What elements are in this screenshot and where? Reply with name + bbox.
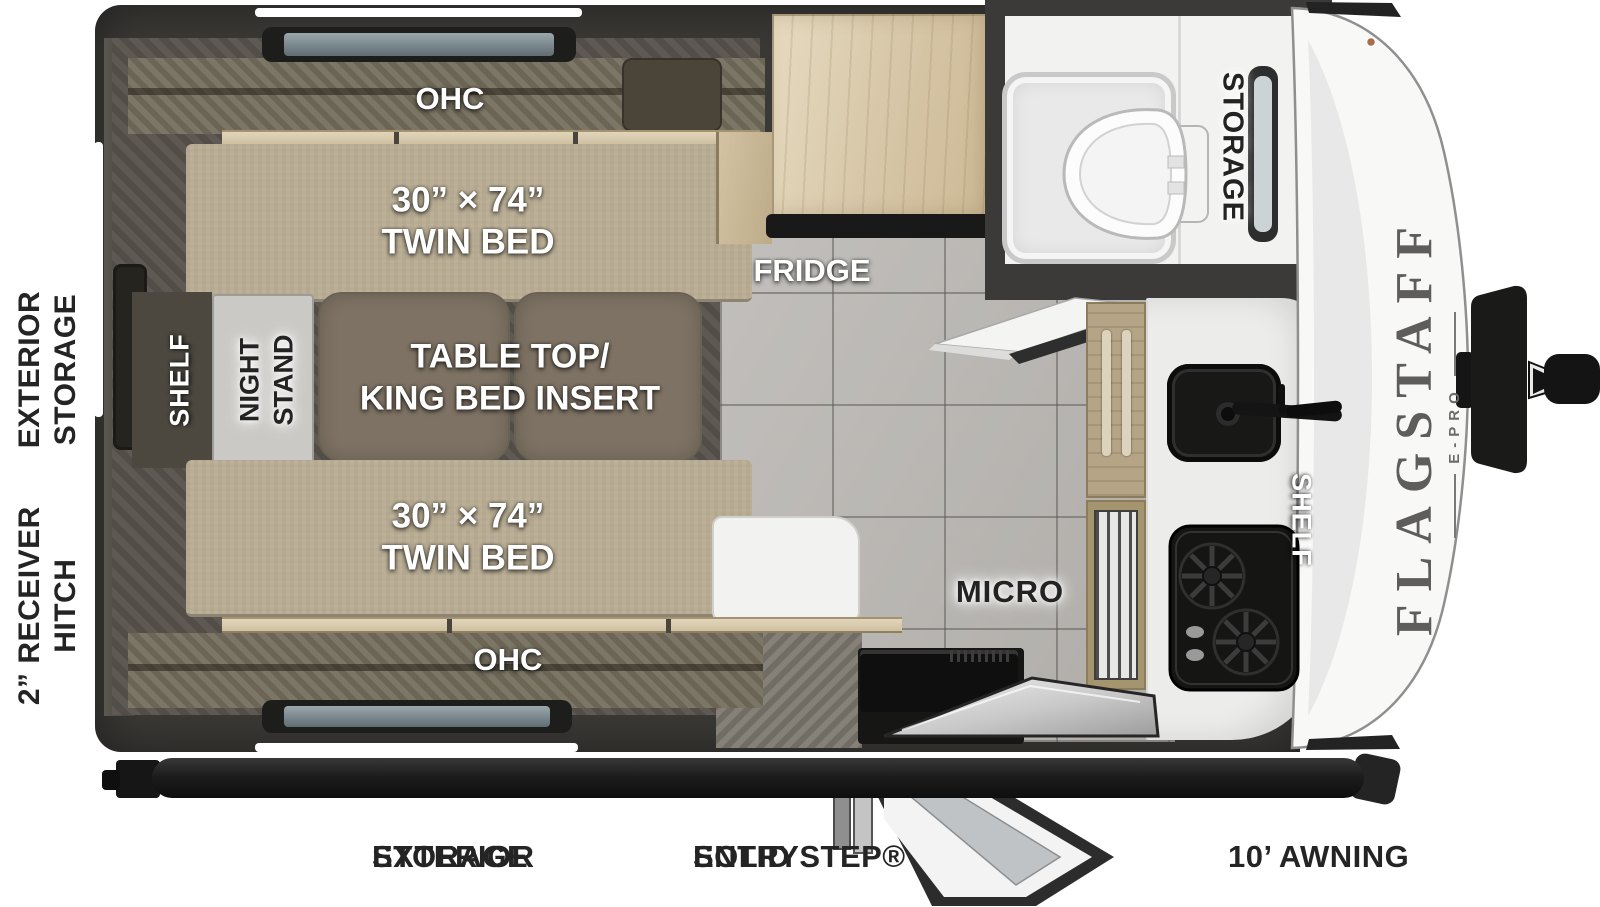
label-ohc-top: OHC — [416, 80, 485, 118]
cabinet-wedge — [716, 132, 772, 244]
left-exterior-labels: 2” RECEIVER HITCH EXTERIOR STORAGE — [0, 198, 106, 798]
top-window-slit — [255, 8, 582, 17]
label-line: HITCH — [48, 506, 84, 705]
label-storage-bath: STORAGE — [1214, 72, 1249, 222]
label-table-1: TABLE TOP/ — [411, 336, 610, 377]
dinette-table — [712, 516, 860, 622]
label-table-2: KING BED INSERT — [360, 378, 660, 419]
label-receiver-hitch: 2” RECEIVER HITCH — [12, 506, 84, 705]
logo-dash — [1454, 474, 1456, 538]
stove-cooktop — [1168, 524, 1300, 692]
label-ohc-bottom: OHC — [474, 641, 543, 679]
bottom-window-slit — [255, 743, 578, 752]
label-line: 10’ AWNING — [1228, 838, 1409, 876]
label-night-stand-2: STAND — [268, 335, 301, 426]
brand-sub-text: E-PRO — [1446, 386, 1463, 464]
label-bed-bottom-name: TWIN BED — [381, 538, 554, 581]
logo-dash — [1454, 312, 1456, 376]
brand-logo: FLAGSTAFF E-PRO — [1369, 145, 1479, 705]
label-line: STORAGE — [48, 291, 84, 448]
cabinet-handle — [1102, 330, 1111, 456]
cabinet-handle — [1122, 330, 1131, 456]
label-line: ENTRY — [693, 838, 799, 876]
label-bed-bottom-size: 30” × 74” — [392, 496, 545, 539]
corner-cushion — [622, 58, 722, 132]
label-shelf-kitchen: SHELF — [1285, 473, 1318, 567]
label-micro: MICRO — [956, 573, 1064, 611]
cabinet-seam — [128, 664, 763, 671]
label-line: STORAGE — [372, 838, 528, 876]
label-bed-top-size: 30” × 74” — [392, 180, 545, 223]
floorplan-canvas: OHC 30” × 74” TWIN BED SHELF NIGHT STAND… — [0, 0, 1600, 907]
microwave-vent — [950, 650, 1012, 662]
brand-sub: E-PRO — [1446, 312, 1463, 538]
entry-threshold — [872, 670, 1162, 740]
label-shelf-bedroom: SHELF — [164, 333, 197, 427]
faucet-handle — [1279, 384, 1285, 414]
kitchen-cabinet — [1086, 302, 1146, 498]
wood-grain-overlay — [772, 14, 994, 216]
roof-vent-glass — [284, 706, 550, 727]
label-line: EXTERIOR — [12, 291, 48, 448]
awning-roller — [152, 758, 1364, 798]
label-bed-top-name: TWIN BED — [381, 222, 554, 265]
bed-platform-bottom — [222, 617, 902, 633]
fridge-counter-edge — [766, 214, 996, 238]
label-line: 2” RECEIVER — [12, 506, 48, 705]
label-exterior-storage-left: EXTERIOR STORAGE — [12, 291, 84, 448]
toilet-icon — [1050, 100, 1220, 250]
label-night-stand-1: NIGHT — [234, 338, 267, 422]
label-fridge: FRIDGE — [753, 252, 870, 290]
roof-vent-glass — [284, 33, 554, 56]
oven-vent-panel — [1094, 510, 1138, 680]
brand-name: FLAGSTAFF — [1385, 214, 1444, 636]
bathroom-window-glass — [1254, 76, 1272, 232]
